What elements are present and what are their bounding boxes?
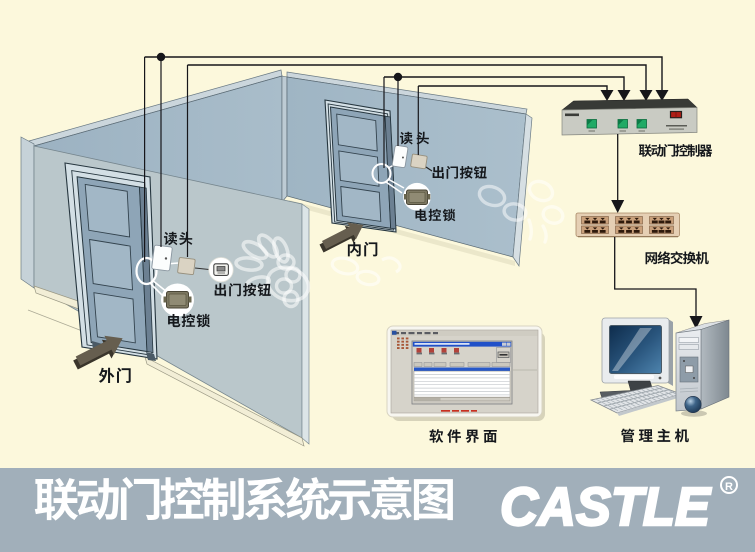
- svg-text:R: R: [725, 481, 733, 493]
- svg-text:CASTLE: CASTLE: [500, 477, 712, 537]
